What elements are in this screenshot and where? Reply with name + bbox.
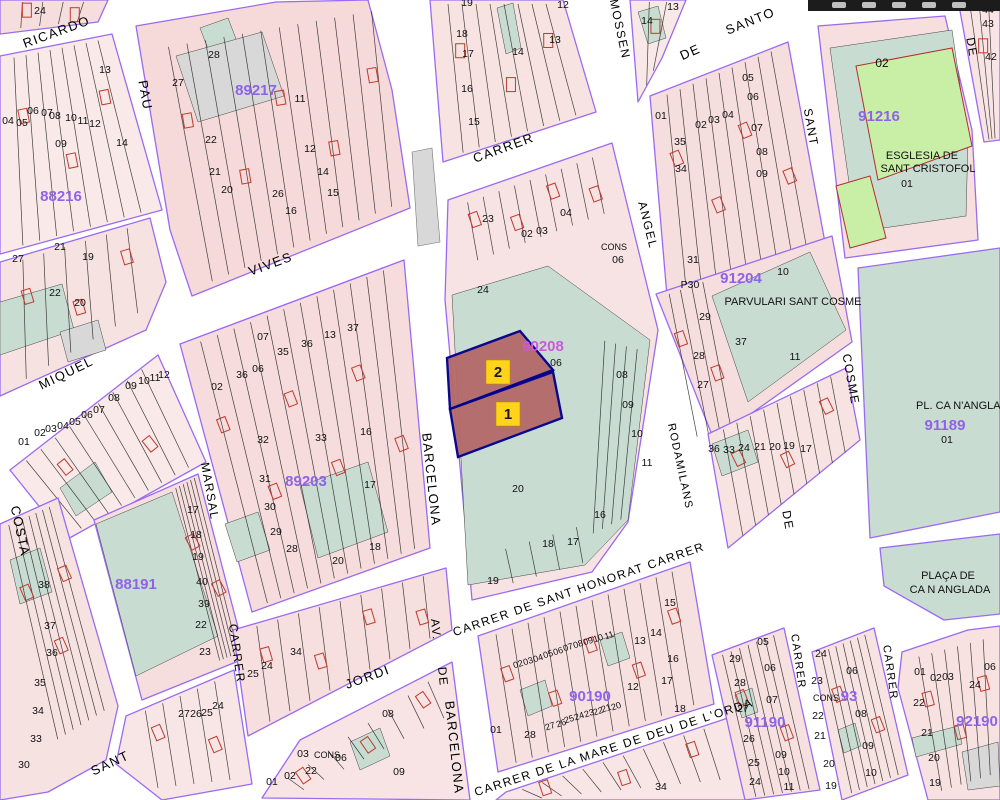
parcel-number: 22 [195,619,207,631]
parcel-number: 19 [487,575,499,587]
parcel-number: 06 [846,665,858,677]
city-block-teal-91189 [858,248,1000,538]
parcel-number: 11 [784,781,795,793]
parcel-number: 18 [190,529,202,541]
parcel-number: 12 [627,681,639,693]
parcel-number: 09 [125,380,137,392]
parcel-number: 05 [69,416,81,428]
parcel-number: 08 [855,708,867,720]
parcel-number: 30 [18,759,30,771]
parcel-number: 18 [456,28,468,40]
parcel-number: 21 [754,441,766,453]
block-id: 88216 [40,188,82,205]
parcel-number: 37 [347,322,359,334]
block-id: 90208 [522,338,564,355]
parcel-number: 17 [567,536,579,548]
parcel-number: 03 [297,748,309,760]
parcel-number: 21 [814,730,826,742]
parcel-number: 33 [723,444,735,456]
parcel-number: 16 [461,83,473,95]
parcel-number: 13 [549,34,561,46]
parcel-number: 11 [790,351,801,363]
parcel-number: 20 [512,483,524,495]
parcel-number: 03 [708,114,720,126]
block-id: 91216 [858,108,900,125]
parcel-number: 29 [270,526,282,538]
parcel-number: 05 [16,117,28,129]
parcel-number: 40 [196,576,208,588]
parcel-number: 03 [45,423,57,435]
parcel-number: 26 [272,188,284,200]
street-name: DE [435,666,451,687]
block-id: 91189 [925,417,966,434]
parcel-number-text: 1 [504,406,512,423]
parcel-number: 43 [982,18,994,30]
parcel-number: 15 [327,187,339,199]
block-id: 89203 [285,473,327,490]
parcel-number: 01 [266,776,278,788]
parcel-number: 24 [738,442,750,454]
parcel-number: 09 [756,168,768,180]
parcel-number: 18 [369,541,381,553]
landmark-label: ESGLESIA DE [886,150,958,162]
parcel-number: 13 [324,329,336,341]
block-id: 90190 [569,688,611,705]
parcel-number: 22 [812,710,824,722]
parcel-number: 01 [914,666,926,678]
block-id: 93 [841,688,858,705]
parcel-number: 03 [942,671,954,683]
parcel-number: 17 [462,48,474,60]
parcel-number: 39 [198,598,210,610]
block-id: 91190 [745,714,786,731]
parcel-number: 12 [158,369,170,381]
parcel-number: 18 [542,538,554,550]
parcel-number: 06 [335,752,347,764]
parcel-number: 21 [209,166,221,178]
parcel-number: 14 [650,627,662,639]
parcel-number: 19 [192,551,204,563]
block-id: 89217 [235,82,277,99]
parcel-number: 34 [290,646,302,658]
parcel-number: 01 [655,110,667,122]
street-name: AV. [428,618,444,641]
parcel-number: 35 [674,136,686,148]
parcel-number: 36 [236,369,248,381]
parcel-number: 04 [560,207,572,219]
parcel-number: 22 [49,287,61,299]
block-id: 92190 [956,713,998,730]
parcel-number: 20 [332,555,344,567]
parcel-number: 33 [30,733,42,745]
parcel-number: 04 [722,109,734,121]
parcel-number: 08 [616,369,628,381]
parcel-number: 02 [521,228,533,240]
window-fragment-glyph [862,2,876,8]
parcel-number: 36 [301,338,313,350]
parcel-number: 11 [642,457,653,469]
parcel-number: 12 [89,118,101,130]
parcel-number: 04 [2,115,14,127]
parcel-number: 06 [612,254,624,266]
city-block-church-91216 [818,16,978,258]
parcel-number: 05 [757,636,769,648]
parcel-number: 24 [212,700,224,712]
parcel-number: 17 [364,479,376,491]
parcel-number: 37 [735,336,747,348]
parcel-number: 20 [769,441,781,453]
parcel-number: 01 [941,434,953,446]
parcel-number: 16 [360,426,372,438]
window-fragment [808,0,1000,11]
cadastral-map[interactable]: 2124130607040508101112091421271922202827… [0,0,1000,800]
parcel-number: 24 [477,284,489,296]
parcel-number: 27 [12,253,24,265]
window-fragment-glyph [832,2,846,8]
parcel-number: 20 [928,752,940,764]
parcel-number: 33 [315,432,327,444]
parcel-number: 10 [65,112,77,124]
parcel-number: 09 [393,766,405,778]
parcel-number: 06 [27,105,39,117]
parcel-number: 23 [482,213,494,225]
parcel-number: 09 [862,740,874,752]
parcel-number: 26 [743,733,755,745]
parcel-number: CONS [813,693,839,703]
parcel-number: 08 [756,146,768,158]
parcel-number: 10 [865,767,877,779]
parcel-number: 09 [55,138,67,150]
parcel-number: 14 [641,15,653,27]
parcel-number: 07 [766,694,778,706]
parcel-number: 05 [742,72,754,84]
parcel-number: 16 [285,205,297,217]
parcel-number: 28 [524,729,536,741]
parcel-number: 07 [93,404,105,416]
parcel-number: 06 [550,357,562,369]
parcel-number: 24 [34,5,46,17]
parcel-number: 09 [622,399,634,411]
parcel-number: 36 [708,443,720,455]
parcel-number: 15 [468,116,480,128]
landmark-label: SANT CRISTOFOL [881,163,976,175]
parcel-number: 19 [929,777,941,789]
parcel-number: 06 [764,662,776,674]
parcel-number: 09 [775,749,787,761]
window-fragment-glyph [952,2,966,8]
parcel-number: 28 [693,350,705,362]
parcel-number: 17 [800,443,812,455]
block-parcel-teal-91189[interactable] [858,248,1000,538]
parcel-number: 19 [825,780,837,792]
parcel-number: 24 [969,679,981,691]
parcel-number: 08 [382,708,394,720]
parcel-number: 12 [557,0,569,11]
parcel-number: 04 [57,420,69,432]
parcel-number: 02 [875,56,889,70]
landmark-label: CA N ANGLADA [910,584,991,596]
window-fragment-glyph [892,2,906,8]
parcel-number: 34 [32,705,44,717]
parcel-number: 15 [664,597,676,609]
parcel-number: 11 [78,115,89,127]
block-id: 91204 [720,270,762,287]
parcel-number: 10 [778,766,790,778]
parcel-number: 20 [74,297,86,309]
parcel-number: 42 [985,51,997,63]
parcel-number: 22 [305,765,317,777]
parcel-number: 17 [661,675,673,687]
parcel-number: 27 [697,379,709,391]
parcel-number: 37 [44,620,56,632]
parcel-number: 19 [82,251,94,263]
parcel-number: 03 [536,225,548,237]
landmark-label: PARVULARI SANT COSME [725,296,862,308]
parcel-number: 28 [734,677,746,689]
parcel-number: 16 [594,509,606,521]
parcel-number: 24 [261,660,273,672]
landmark-label: PLAÇA DE [921,570,975,582]
parcel-number: 21 [54,241,66,253]
parcel-number: 01 [490,724,502,736]
parcel-number: 38 [38,579,50,591]
parcel-number: 24 [749,776,761,788]
cadastral-map-viewport[interactable]: 2124130607040508101112091421271922202827… [0,0,1000,800]
parcel-number: 24 [815,648,827,660]
parcel-number: 01 [18,436,30,448]
parcel-number: 20 [823,758,835,770]
block-id: 88191 [115,576,157,593]
parcel-number: 10 [138,375,150,387]
parcel-number: 11 [295,93,306,105]
parcel-number: 19 [461,0,473,9]
parcel-number: 02 [284,770,296,782]
parcel-number: 06 [747,91,759,103]
parcel-number: 22 [913,697,925,709]
parcel-number: 29 [699,311,711,323]
parcel-number: 23 [811,675,823,687]
parcel-number: 20 [221,184,233,196]
parcel-number: 29 [729,653,741,665]
parcel-number: 02 [695,119,707,131]
parcel-number: 22 [205,134,217,146]
parcel-number: 08 [108,392,120,404]
parcel-number: 13 [99,64,111,76]
parcel-number: 02 [930,672,942,684]
parcel-number: 07 [751,122,763,134]
parcel-number: 13 [667,1,679,13]
parcel-number: 31 [259,473,271,485]
parcel-number: 28 [208,49,220,61]
parcel-number: 17 [187,504,199,516]
parcel-number: 12 [304,143,316,155]
parcel-number: 02 [211,381,223,393]
parcel-number: 21 [921,727,933,739]
parcel-number: 35 [277,346,289,358]
parcel-number: 19 [783,440,795,452]
parcel-number: 14 [512,46,524,58]
parcel-number: 10 [777,266,789,278]
parcel-number: 10 [631,428,643,440]
parcel-number: 06 [984,661,996,673]
parcel-number: 34 [675,163,687,175]
parcel-number: 31 [687,254,699,266]
parcel-number: 06 [252,363,264,375]
parcel-number: 16 [667,653,679,665]
parcel-number: 07 [257,331,269,343]
parcel-number: 25 [247,668,259,680]
parcel-number: 14 [317,166,329,178]
parcel-number: 06 [81,409,93,421]
parcel-number: 35 [34,677,46,689]
parcel-number: 01 [901,178,913,190]
parcel-number: CONS [601,242,627,252]
parcel-number-text: 2 [494,364,502,381]
parcel-number: 23 [199,646,211,658]
parcel-number: 28 [286,543,298,555]
parcel-number: 32 [257,434,269,446]
window-fragment-glyph [922,2,936,8]
parcel-number: 25 [748,757,760,769]
parcel-number: 30 [264,501,276,513]
parcel-number: 36 [46,647,58,659]
parcel-number: P30 [681,279,700,291]
parcel-number: 14 [116,137,128,149]
parcel-number: 08 [49,110,61,122]
parcel-number: 34 [655,781,667,793]
parcel-number: 13 [634,635,646,647]
parcel-number: 27 [178,708,190,720]
landmark-label: PL. CA N'ANGLAD [916,400,1000,412]
parcel-number: 18 [674,703,686,715]
parcel-number: 27 [172,77,184,89]
